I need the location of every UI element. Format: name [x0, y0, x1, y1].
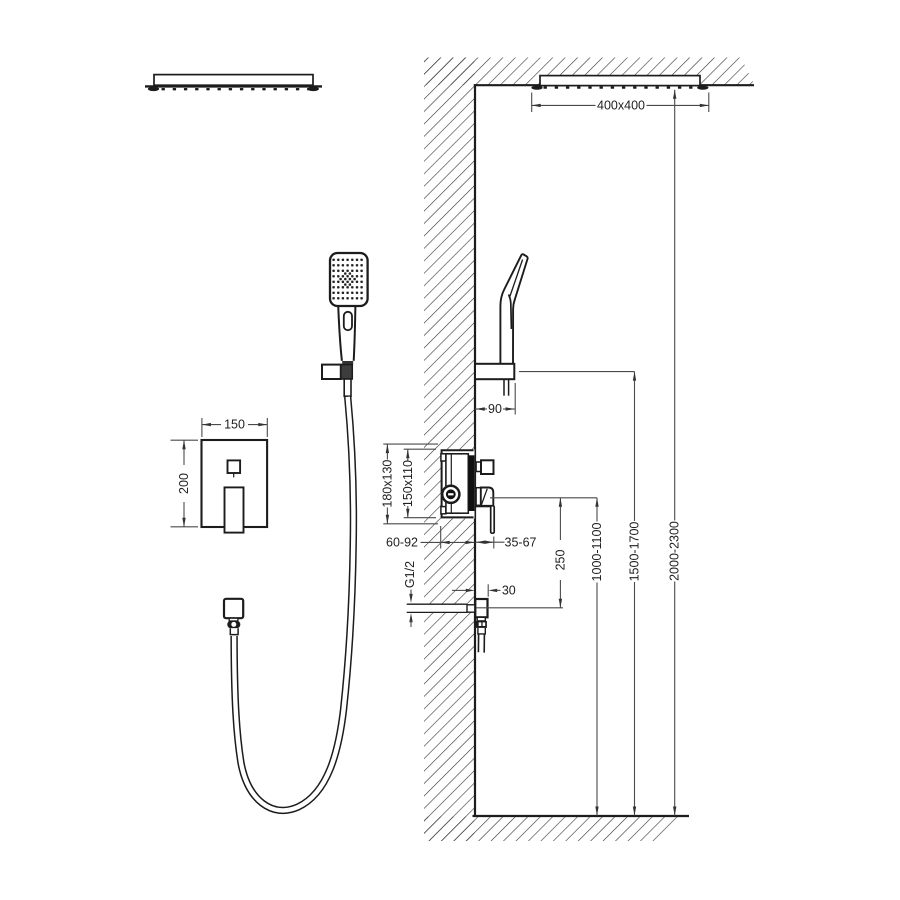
svg-text:150: 150: [224, 418, 245, 432]
svg-text:90: 90: [488, 402, 502, 416]
svg-text:30: 30: [502, 583, 516, 597]
svg-text:150x110: 150x110: [401, 460, 415, 507]
svg-text:250: 250: [553, 550, 567, 571]
svg-text:400x400: 400x400: [597, 99, 645, 113]
svg-text:1500-1700: 1500-1700: [628, 522, 642, 582]
svg-text:200: 200: [177, 473, 191, 494]
svg-text:2000-2300: 2000-2300: [668, 521, 682, 581]
svg-text:G1/2: G1/2: [403, 561, 417, 588]
svg-text:180x130: 180x130: [380, 460, 394, 508]
svg-text:60-92: 60-92: [386, 536, 418, 550]
svg-text:35-67: 35-67: [505, 535, 537, 549]
svg-text:1000-1100: 1000-1100: [590, 523, 604, 582]
